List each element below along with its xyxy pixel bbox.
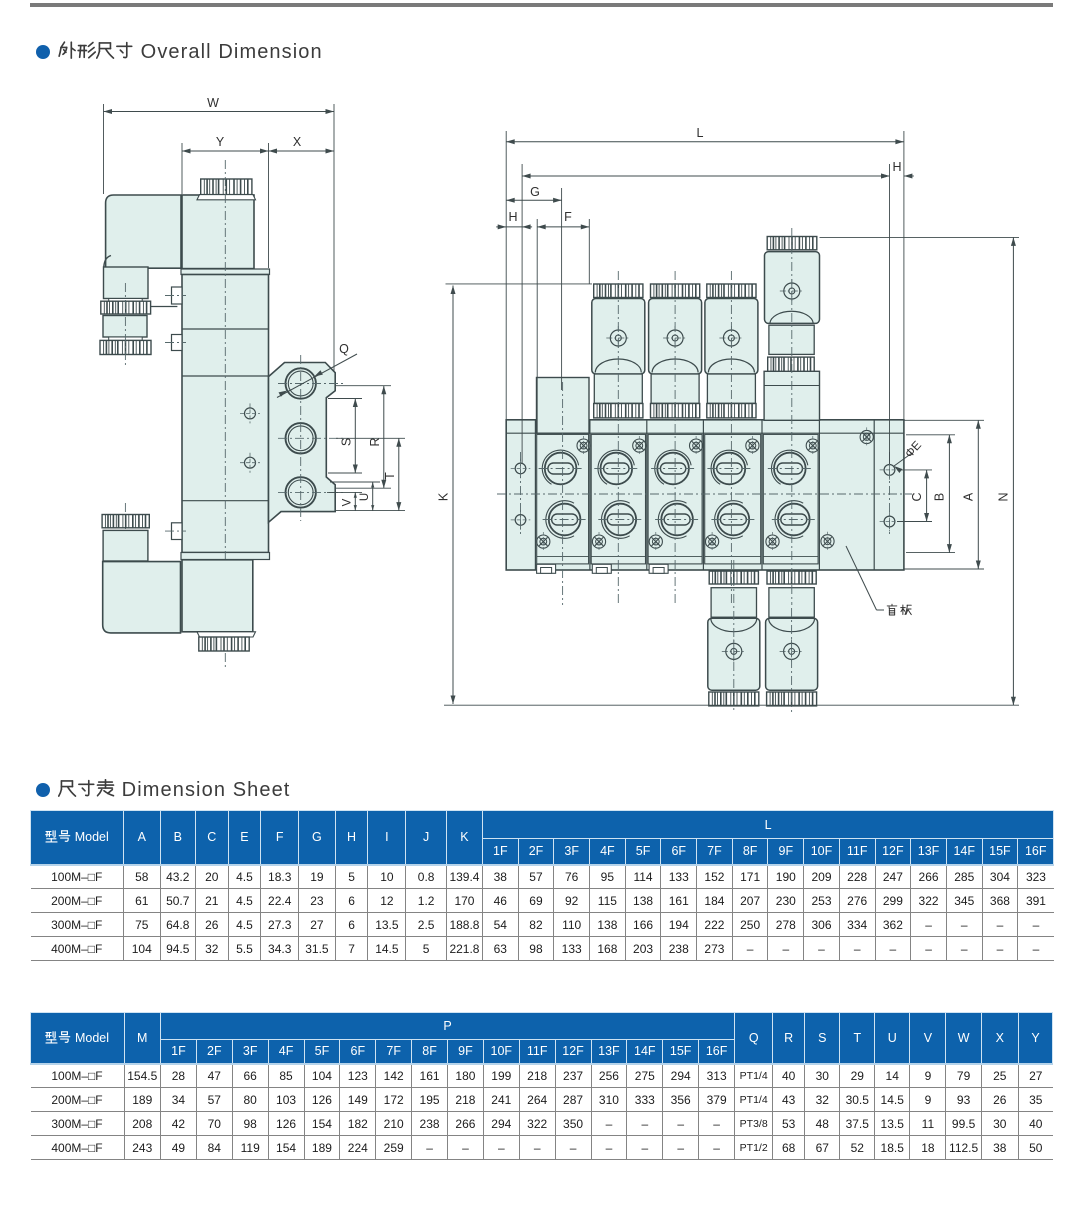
svg-text:S: S: [340, 438, 354, 446]
svg-text:H: H: [508, 210, 517, 224]
svg-text:Q: Q: [339, 342, 349, 356]
svg-text:X: X: [293, 135, 302, 149]
svg-text:U: U: [359, 493, 371, 501]
svg-text:G: G: [530, 185, 540, 199]
svg-text:A: A: [962, 492, 976, 501]
svg-text:V: V: [342, 498, 354, 506]
svg-text:Y: Y: [216, 135, 225, 149]
svg-text:H: H: [892, 160, 901, 174]
svg-text:K: K: [437, 492, 451, 501]
svg-text:N: N: [997, 492, 1011, 501]
svg-text:B: B: [933, 493, 947, 501]
svg-text:T: T: [383, 472, 397, 480]
svg-text:R: R: [368, 437, 382, 446]
svg-text:L: L: [697, 126, 704, 140]
svg-text:ΦE: ΦE: [902, 438, 924, 460]
svg-text:C: C: [910, 492, 924, 501]
svg-text:F: F: [564, 210, 572, 224]
svg-text:W: W: [207, 96, 219, 110]
